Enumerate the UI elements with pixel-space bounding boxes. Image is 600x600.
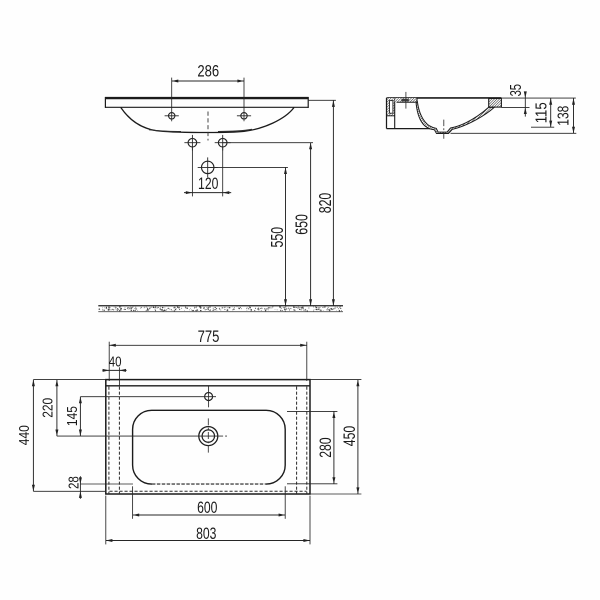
svg-text:145: 145 [64, 406, 81, 426]
svg-text:40: 40 [109, 353, 122, 370]
svg-text:550: 550 [267, 227, 287, 248]
svg-text:220: 220 [39, 398, 56, 418]
svg-text:120: 120 [198, 174, 218, 193]
svg-text:28: 28 [65, 476, 82, 489]
svg-text:803: 803 [196, 525, 216, 543]
svg-text:650: 650 [292, 214, 312, 235]
svg-text:775: 775 [198, 328, 220, 346]
svg-text:35: 35 [508, 84, 525, 96]
svg-text:440: 440 [16, 425, 33, 445]
svg-text:450: 450 [340, 426, 359, 446]
svg-text:600: 600 [197, 499, 217, 517]
svg-text:280: 280 [316, 437, 335, 457]
svg-text:286: 286 [197, 63, 219, 81]
svg-text:115: 115 [534, 102, 551, 123]
svg-text:820: 820 [315, 193, 335, 214]
svg-text:138: 138 [555, 106, 572, 126]
